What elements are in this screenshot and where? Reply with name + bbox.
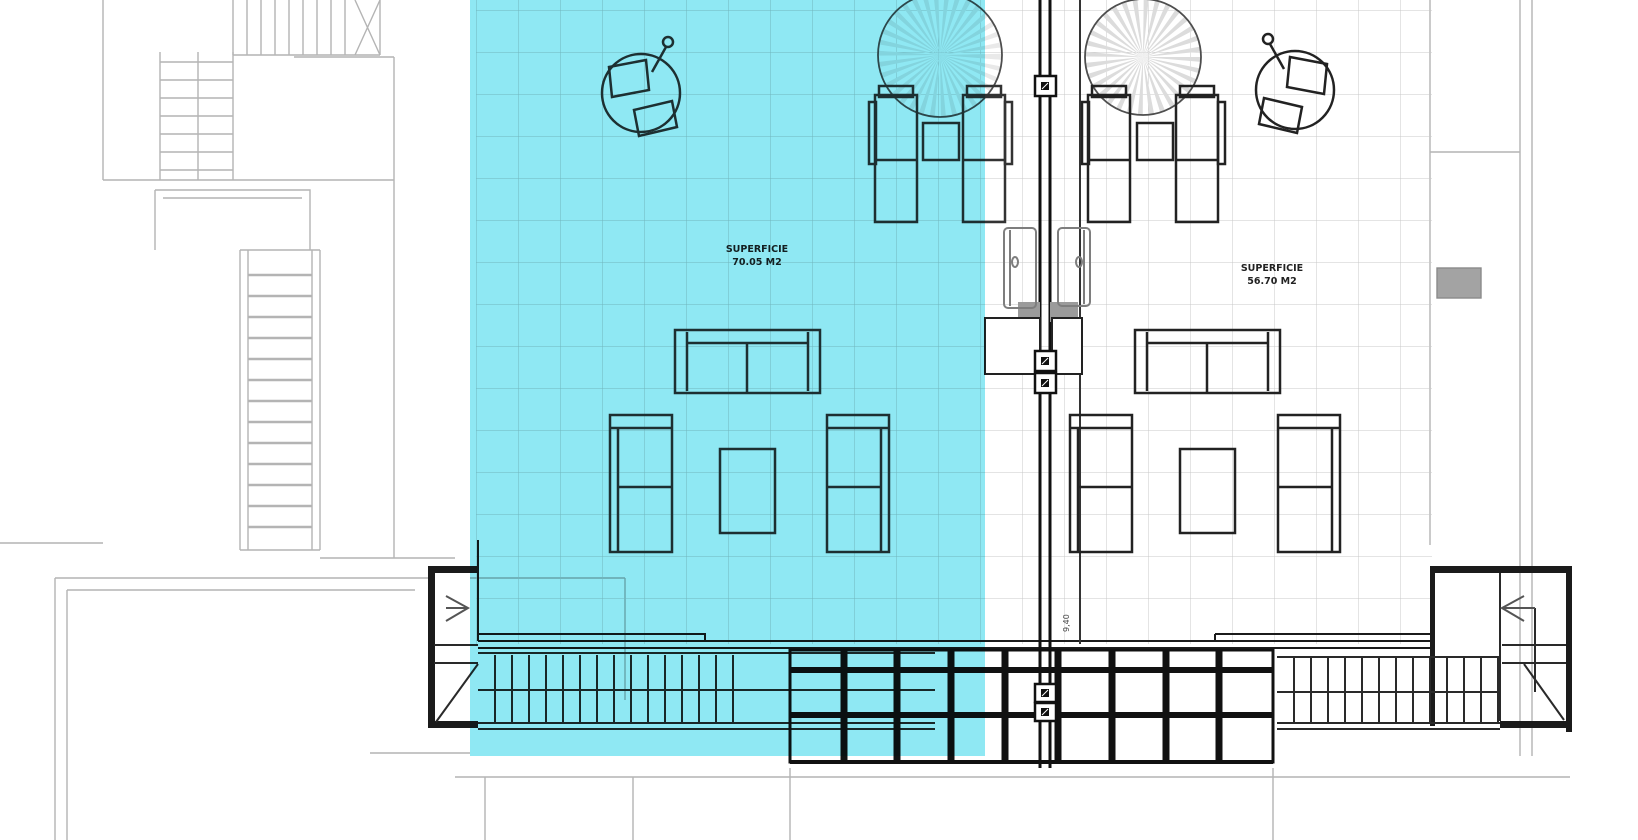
stair-direction-arrow-left <box>446 596 468 621</box>
neighbor-lines-bottom <box>370 753 1570 840</box>
unit-right-area-label: 56.70 M2 <box>1247 276 1296 287</box>
dimension-label: 9,40 <box>1062 614 1071 632</box>
stair-direction-arrow-right <box>1502 596 1535 621</box>
unit-right-superficie-label: SUPERFICIE <box>1241 263 1303 274</box>
neighbor-walls-right <box>1430 0 1532 756</box>
pillar-marker <box>1035 703 1056 721</box>
floor-plan-stage: SUPERFICIE 70.05 M2 SUPERFICIE 56.70 M2 … <box>0 0 1638 840</box>
pillar-marker <box>1035 373 1056 393</box>
unit-highlight-overlay[interactable] <box>470 0 985 756</box>
neighbor-stair-mid-left <box>155 190 320 550</box>
planter-box-left <box>985 318 1040 374</box>
stair-treads-right <box>1294 658 1498 722</box>
pillar-marker <box>1035 76 1056 96</box>
pillar-marker <box>1035 351 1056 371</box>
neighbor-stair-upper-left <box>160 52 233 180</box>
neighbor-stair-top <box>233 0 380 55</box>
neighbor-walls-left <box>0 0 394 558</box>
pillar-marker <box>1035 684 1056 702</box>
